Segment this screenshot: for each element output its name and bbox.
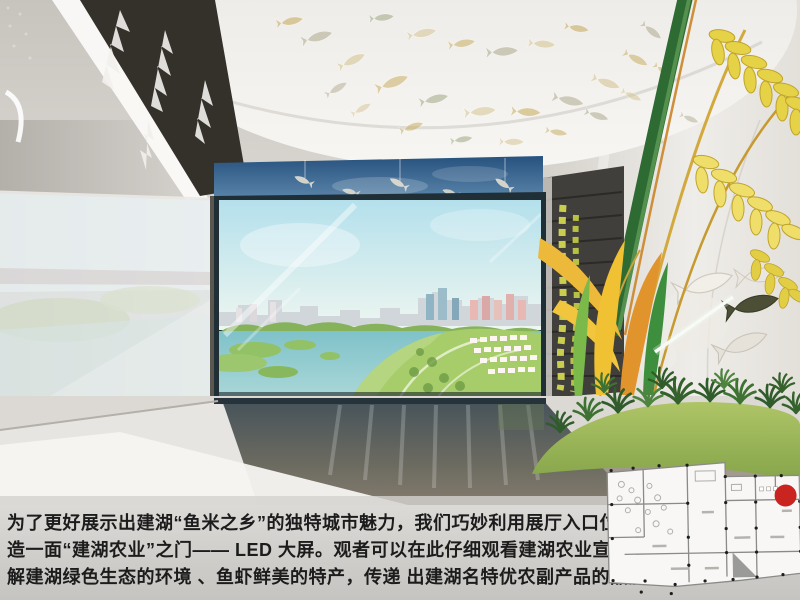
floor-plan-inset (603, 439, 800, 598)
proposal-page: 为了更好展示出建湖“鱼米之乡”的独特城市魅力，我们巧妙利用展厅入口位置，创新打 … (0, 0, 800, 600)
exhibition-hall-rendering (0, 0, 800, 505)
led-screen (203, 192, 546, 403)
left-wall-reflection-panel (0, 192, 210, 414)
led-screen-content (203, 200, 541, 397)
floor-plan-paper (607, 461, 800, 587)
floor-plan-markers (759, 487, 777, 491)
